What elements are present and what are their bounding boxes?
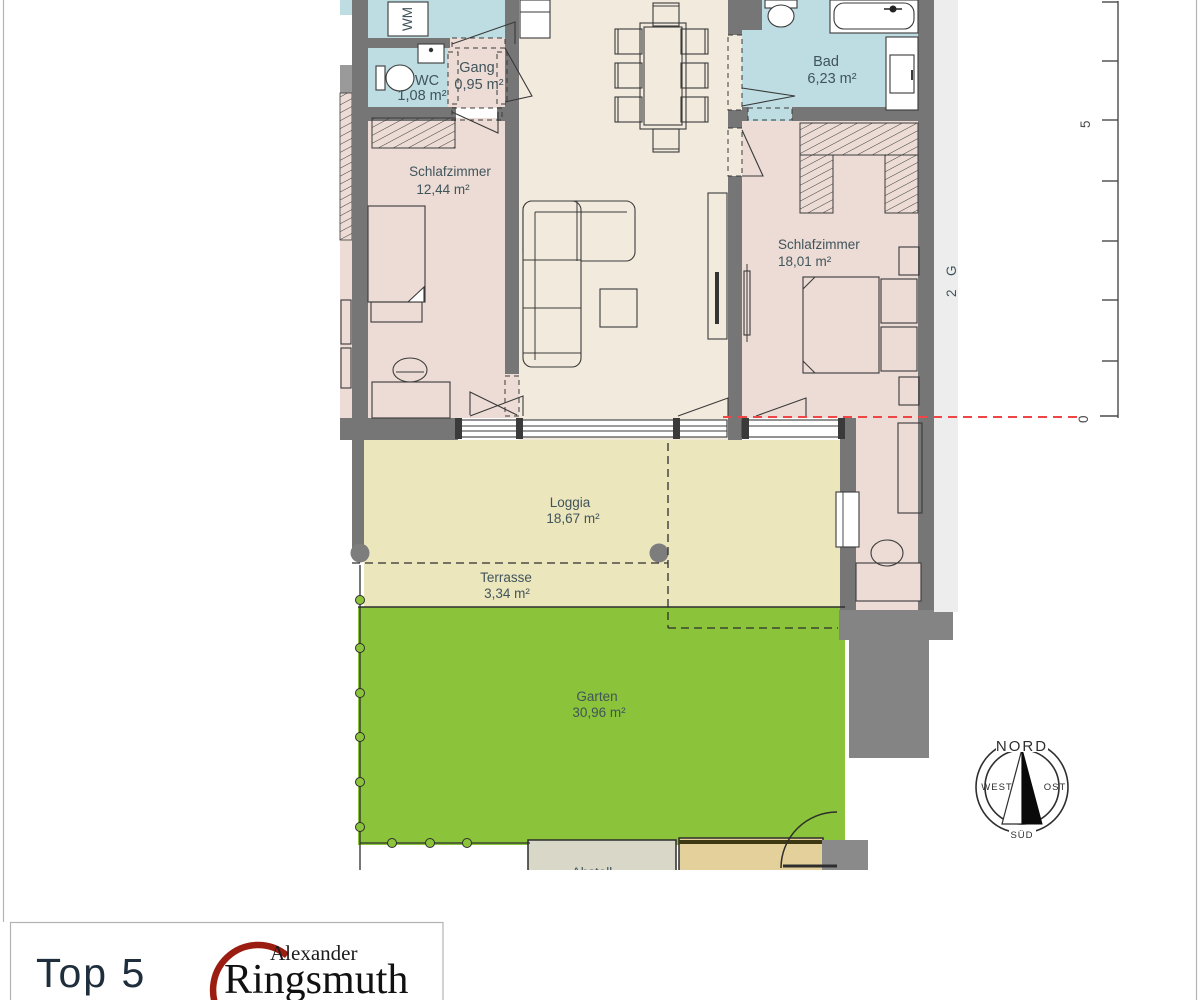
bedroom-left-area: 12,44 m² [416,182,470,197]
vanity-symbol [886,37,918,110]
gang-area: 0,95 m² [454,77,503,93]
terrasse-area: 3,34 m² [484,586,530,601]
edge-label-fragment-1: G [944,265,959,276]
floor-plan-image: WM [0,0,1200,1000]
wc-area: 1,08 m² [397,88,446,104]
compass-north-label: NORD [996,738,1048,755]
garten-area: 30,96 m² [572,705,626,720]
bedroom-left-name: Schlafzimmer [409,164,491,179]
loggia-floor [364,440,856,607]
wc-name: WC [415,73,439,89]
kitchen-counter-symbol [520,0,550,38]
bedroom-right-name: Schlafzimmer [778,237,860,252]
coffee-table-symbol [600,289,637,327]
loggia-name: Loggia [550,495,591,510]
unit-label: Top 5 [36,950,146,997]
loggia-area: 18,67 m² [546,511,600,526]
bedroom-right-area: 18,01 m² [778,254,832,269]
garden-floor [358,607,845,845]
neighbor-apartment-left-strip [340,0,352,418]
right-crop-mask [958,0,1200,1000]
loggia-side-window [836,492,859,547]
brand-last-name: Ringsmuth [224,956,408,1000]
garten-name: Garten [576,689,617,704]
terrasse-name: Terrasse [480,570,532,585]
bottom-crop-mask [0,870,1200,1000]
washing-machine-symbol: WM [388,2,428,36]
ruler-label-0: 0 [1076,415,1091,423]
gang-name: Gang [459,60,494,76]
wm-label: WM [400,7,415,31]
floor-plan-drawing: WM [340,0,960,880]
compass-east-label: OST [1044,782,1067,793]
ruler-label-5: 5 [1078,120,1093,128]
bad-area: 6,23 m² [807,71,856,87]
compass-south-label: SÜD [1010,830,1033,841]
bathtub-symbol [830,0,918,33]
loggia-column [650,544,669,563]
brand-logo: Alexander Ringsmuth [200,924,445,1000]
bad-name: Bad [813,54,839,70]
edge-label-fragment-2: 2 [944,289,959,297]
loggia-column [351,544,370,563]
floor-plan-page: WM [0,0,1200,1000]
compass-west-label: WEST [981,782,1012,793]
